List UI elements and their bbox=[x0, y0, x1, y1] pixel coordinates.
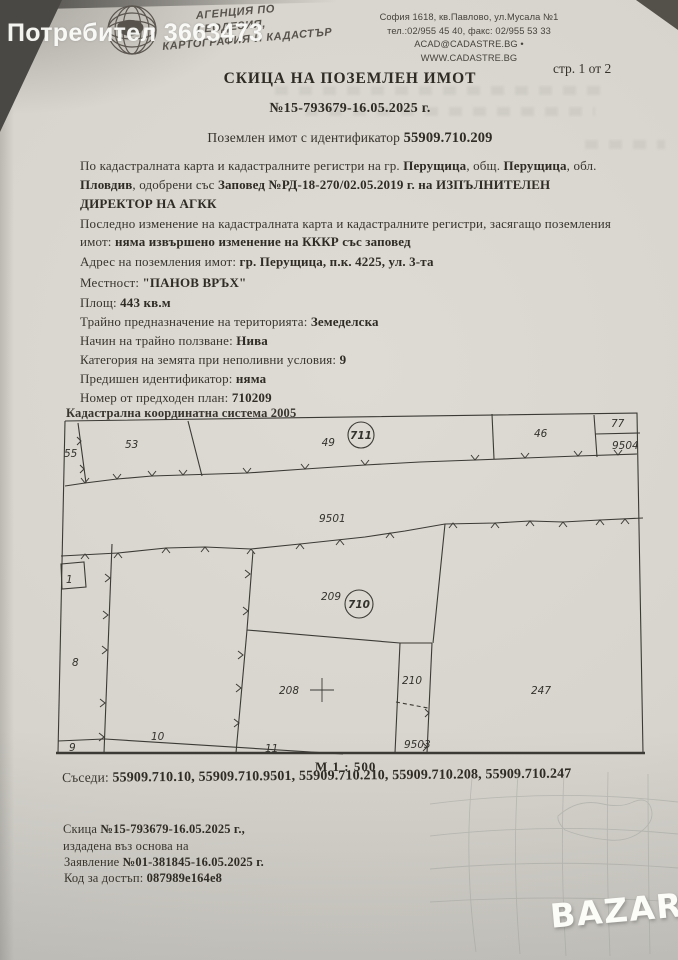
survey-ticks-misc bbox=[77, 437, 429, 751]
paragraph1-line1: По кадастралната карта и кадастралните р… bbox=[80, 158, 597, 174]
text: Скица bbox=[63, 822, 100, 836]
text: 087989e164e8 bbox=[147, 871, 222, 885]
parcel-label-710: 710 bbox=[348, 599, 370, 611]
field-value: няма bbox=[236, 371, 266, 386]
page-indicator: стр. 1 от 2 bbox=[553, 61, 611, 77]
parcel-label-77: 77 bbox=[611, 418, 625, 430]
text: няма извършено изменение на КККР със зап… bbox=[115, 234, 411, 249]
parcel-label-210: 210 bbox=[402, 675, 422, 687]
field-label: Адрес на поземления имот: bbox=[80, 254, 240, 269]
text: Перущица bbox=[403, 158, 466, 173]
field-category: Категория на земята при неполивни услови… bbox=[80, 352, 346, 368]
parcel-210-strip bbox=[395, 643, 432, 753]
text: №15-793679-16.05.2025 г., bbox=[100, 822, 245, 836]
paragraph1-line2: Пловдив, одобрени със Заповед №РД-18-270… bbox=[80, 177, 550, 193]
map-border bbox=[65, 413, 643, 753]
parcel-208-left bbox=[236, 630, 247, 753]
field-label: Номер от предходен план: bbox=[80, 390, 232, 405]
paragraph2-line1: Последно изменение на кадастралната карт… bbox=[80, 216, 611, 232]
parcel-label-53: 53 bbox=[125, 439, 138, 451]
field-label: Категория на земята при неполивни услови… bbox=[80, 352, 340, 367]
user-watermark: Потребител 3663473 bbox=[7, 19, 263, 48]
field-value: 9 bbox=[340, 352, 347, 367]
parcel-label-55: 55 bbox=[64, 448, 78, 460]
parcel-label-49: 49 bbox=[322, 437, 336, 449]
survey-ticks-209-left bbox=[234, 570, 250, 727]
field-area: Площ: 443 кв.м bbox=[80, 295, 171, 311]
parcel-label-247: 247 bbox=[531, 685, 551, 697]
field-label: Площ: bbox=[80, 295, 120, 310]
text: , общ. bbox=[466, 158, 503, 173]
field-value: гр. Перущица, п.к. 4225, ул. 3-та bbox=[240, 254, 434, 269]
address-line3: ACAD@CADASTRE.BG • WWW.CADASTRE.BG bbox=[374, 38, 564, 65]
bleed-through-smudge bbox=[585, 140, 665, 149]
parcel-identifier-line: Поземлен имот с идентификатор 55909.710.… bbox=[207, 130, 492, 147]
paragraph2-line2: имот: няма извършено изменение на КККР с… bbox=[80, 234, 411, 250]
text: Пловдив bbox=[80, 177, 132, 192]
text: Заповед №РД-18-270/02.05.2019 г. на ИЗПЪ… bbox=[218, 177, 550, 192]
parcel-label-9504: 9504 bbox=[612, 440, 639, 452]
boundary-55 bbox=[78, 423, 86, 483]
parcel-label-711: 711 bbox=[350, 430, 372, 442]
cadastral-map: 55 53 49 711 46 77 9504 9501 1 8 209 710… bbox=[55, 411, 647, 763]
survey-ticks-road-top bbox=[81, 450, 622, 483]
text: №01-381845-16.05.2025 г. bbox=[123, 855, 264, 869]
parcel-11-sliver bbox=[105, 739, 343, 754]
text: Код за достъп: bbox=[64, 871, 147, 885]
road-bottom-edge bbox=[61, 518, 643, 556]
field-value: Нива bbox=[236, 333, 268, 348]
field-value: 710209 bbox=[232, 390, 272, 405]
photo-corner-top-right bbox=[636, 0, 678, 30]
parcel-label-9503: 9503 bbox=[404, 739, 431, 751]
parcel-label-10: 10 bbox=[151, 731, 165, 743]
boundary-49-46 bbox=[492, 414, 494, 459]
bulgaria-outline bbox=[558, 800, 652, 840]
survey-ticks-left-line bbox=[99, 574, 110, 741]
boundary-53-49 bbox=[188, 421, 202, 476]
footer-access-code: Код за достъп: 087989e164e8 bbox=[64, 871, 222, 886]
field-use: Начин на трайно ползване: Нива bbox=[80, 333, 268, 349]
text: По кадастралната карта и кадастралните р… bbox=[80, 158, 403, 173]
parcel-9-top bbox=[58, 739, 104, 741]
text: Последно изменение на кадастралната карт… bbox=[80, 216, 611, 231]
field-value: 443 кв.м bbox=[120, 295, 171, 310]
field-value: Земеделска bbox=[311, 314, 379, 329]
field-address: Адрес на поземления имот: гр. Перущица, … bbox=[80, 254, 434, 270]
parcel-label-208: 208 bbox=[279, 685, 299, 697]
survey-ticks-road-bottom bbox=[81, 519, 629, 559]
road-top-edge bbox=[65, 454, 637, 486]
field-locality: Местност: "ПАНОВ ВРЪХ" bbox=[80, 275, 246, 291]
document-title: СКИЦА НА ПОЗЕМЛЕН ИМОТ bbox=[224, 70, 477, 88]
text: Перущица bbox=[504, 158, 567, 173]
footer-issued-on-basis: издадена въз основа на bbox=[63, 839, 189, 854]
parcel-label-209: 209 bbox=[321, 591, 341, 603]
field-value: "ПАНОВ ВРЪХ" bbox=[143, 275, 247, 290]
parcel-label-46: 46 bbox=[534, 428, 548, 440]
paragraph1-line3: ДИРЕКТОР НА АГКК bbox=[80, 196, 217, 212]
parcel-label-8: 8 bbox=[72, 657, 79, 669]
text: Заявление bbox=[64, 855, 123, 869]
field-label: Начин на трайно ползване: bbox=[80, 333, 236, 348]
field-label: Трайно предназначение на територията: bbox=[80, 314, 311, 329]
text: , обл. bbox=[567, 158, 597, 173]
document-number: №15-793679-16.05.2025 г. bbox=[269, 101, 430, 117]
field-label: Предишен идентификатор: bbox=[80, 371, 236, 386]
parcel-1-box bbox=[61, 562, 86, 589]
address-line1: София 1618, кв.Павлово, ул.Мусала №1 bbox=[374, 11, 564, 25]
footer-sketch-number: Скица №15-793679-16.05.2025 г., bbox=[63, 822, 245, 837]
parcel-209-boundary bbox=[247, 524, 445, 643]
address-line2: тел.:02/955 45 40, факс: 02/955 53 33 bbox=[374, 25, 564, 39]
text: имот: bbox=[80, 234, 115, 249]
parcel-label-11: 11 bbox=[265, 743, 278, 755]
parcel-label-9: 9 bbox=[69, 742, 76, 754]
field-designation: Трайно предназначение на територията: Зе… bbox=[80, 314, 379, 330]
scanned-document-photo: АГЕНЦИЯ ПО ГЕОДЕЗИЯ, КАРТОГРАФИЯ И КАДАС… bbox=[0, 0, 678, 960]
dashed-division-210-9503 bbox=[396, 702, 428, 708]
parcel-label-9501: 9501 bbox=[319, 513, 346, 525]
neighbors-label: Съседи: bbox=[62, 770, 113, 785]
field-previous-plan: Номер от предходен план: 710209 bbox=[80, 390, 272, 406]
text: ДИРЕКТОР НА АГКК bbox=[80, 196, 217, 211]
parcel-label-1: 1 bbox=[66, 574, 73, 586]
agency-address-block: София 1618, кв.Павлово, ул.Мусала №1 тел… bbox=[374, 11, 564, 65]
coordinate-cross-marker bbox=[310, 678, 334, 702]
parcel-id: 55909.710.209 bbox=[404, 130, 493, 146]
footer-application-number: Заявление №01-381845-16.05.2025 г. bbox=[64, 855, 264, 870]
text: , одобрени със bbox=[132, 177, 218, 192]
field-previous-id: Предишен идентификатор: няма bbox=[80, 371, 266, 387]
field-label: Местност: bbox=[80, 275, 143, 290]
subtitle-prefix: Поземлен имот с идентификатор bbox=[207, 130, 403, 145]
